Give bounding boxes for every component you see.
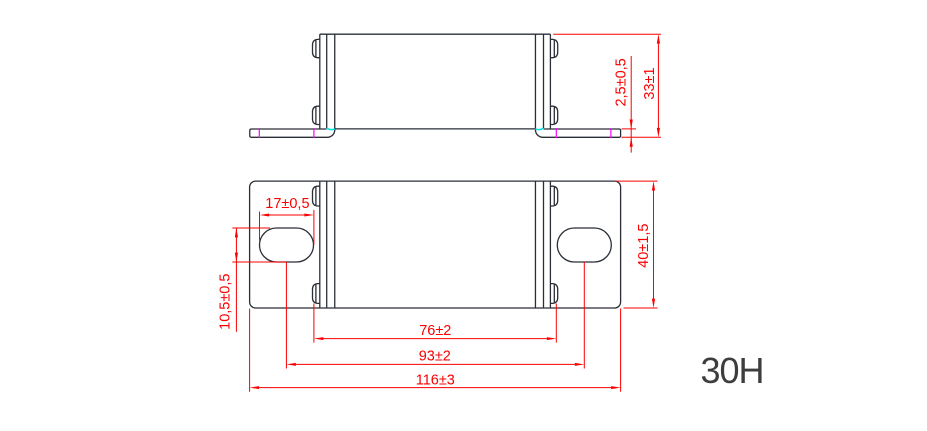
svg-text:116±3: 116±3 [416, 373, 455, 389]
svg-text:76±2: 76±2 [419, 323, 451, 339]
svg-text:2,5±0,5: 2,5±0,5 [614, 58, 630, 106]
svg-text:93±2: 93±2 [419, 349, 451, 365]
svg-text:30H: 30H [700, 350, 763, 391]
svg-text:33±1: 33±1 [642, 67, 658, 99]
svg-text:40±1,5: 40±1,5 [636, 224, 652, 268]
svg-text:17±0,5: 17±0,5 [265, 196, 309, 212]
svg-text:10,5±0,5: 10,5±0,5 [218, 274, 234, 330]
